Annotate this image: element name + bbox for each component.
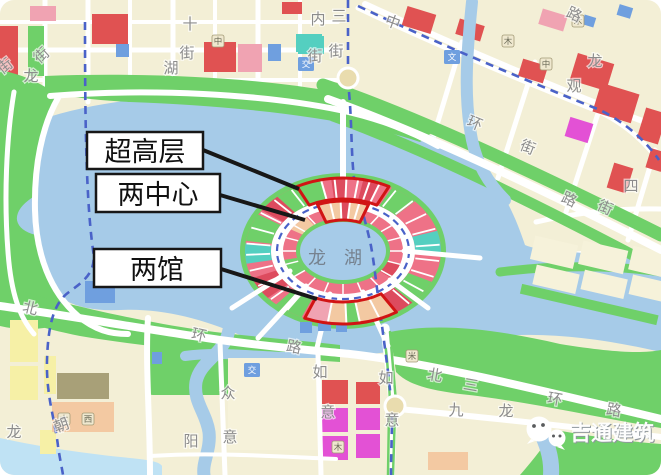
- street-label: 龙: [23, 68, 38, 85]
- street-label: 意: [384, 411, 399, 429]
- poi-icon-label: 文: [448, 52, 457, 62]
- poi-icon-label: 木: [504, 36, 513, 46]
- poi-icon-label: 西: [84, 414, 93, 424]
- callout-label-super-highrise: 超高层: [105, 137, 186, 167]
- street-label: 路: [605, 401, 623, 420]
- street-label: 四: [623, 178, 638, 195]
- poi-icon-label: 木: [334, 442, 343, 452]
- street-label: 北: [426, 366, 444, 385]
- street-label: 意: [320, 403, 335, 421]
- street-label: 如: [312, 364, 327, 381]
- zone-two-centers: [318, 201, 369, 222]
- street-label: 街: [328, 43, 343, 60]
- street-label: 龙: [498, 403, 513, 420]
- callout-label-two-centers: 两中心: [118, 180, 199, 210]
- street-label: 龙: [6, 424, 21, 441]
- street-label: 意: [222, 428, 237, 446]
- street-label: 观: [566, 78, 581, 95]
- watermark-text: 吉通建筑: [570, 421, 654, 445]
- poi-icon-label: 中: [542, 59, 551, 69]
- street-label: 湖: [163, 60, 178, 77]
- street-label: 街: [307, 48, 322, 65]
- street-label: 众: [220, 385, 235, 402]
- map-screenshot: 中木中木木西木米交文交 街龙街十街湖内街中三街路龙观环街四路街北环路朝龙众意阳如…: [0, 0, 661, 475]
- street-label: 十: [182, 16, 197, 33]
- street-label: 龙: [587, 53, 602, 70]
- poi-icon-label: 中: [214, 36, 223, 46]
- street-label: 三: [331, 8, 346, 25]
- poi-icon-label: 米: [408, 351, 417, 361]
- poi-icon-label: 交: [248, 365, 257, 375]
- street-label: 如: [378, 370, 393, 387]
- lake-name-label: 龙湖: [308, 248, 380, 268]
- street-label: 环: [546, 390, 564, 409]
- callout-label-two-halls: 两馆: [130, 255, 184, 285]
- street-label: 内: [310, 11, 325, 28]
- street-label: 阳: [183, 433, 198, 450]
- map-canvas: 中木中木木西木米交文交 街龙街十街湖内街中三街路龙观环街四路街北环路朝龙众意阳如…: [0, 0, 661, 475]
- street-label: 街: [179, 45, 194, 62]
- street-label: 九: [448, 402, 463, 419]
- street-label: 三: [462, 376, 480, 395]
